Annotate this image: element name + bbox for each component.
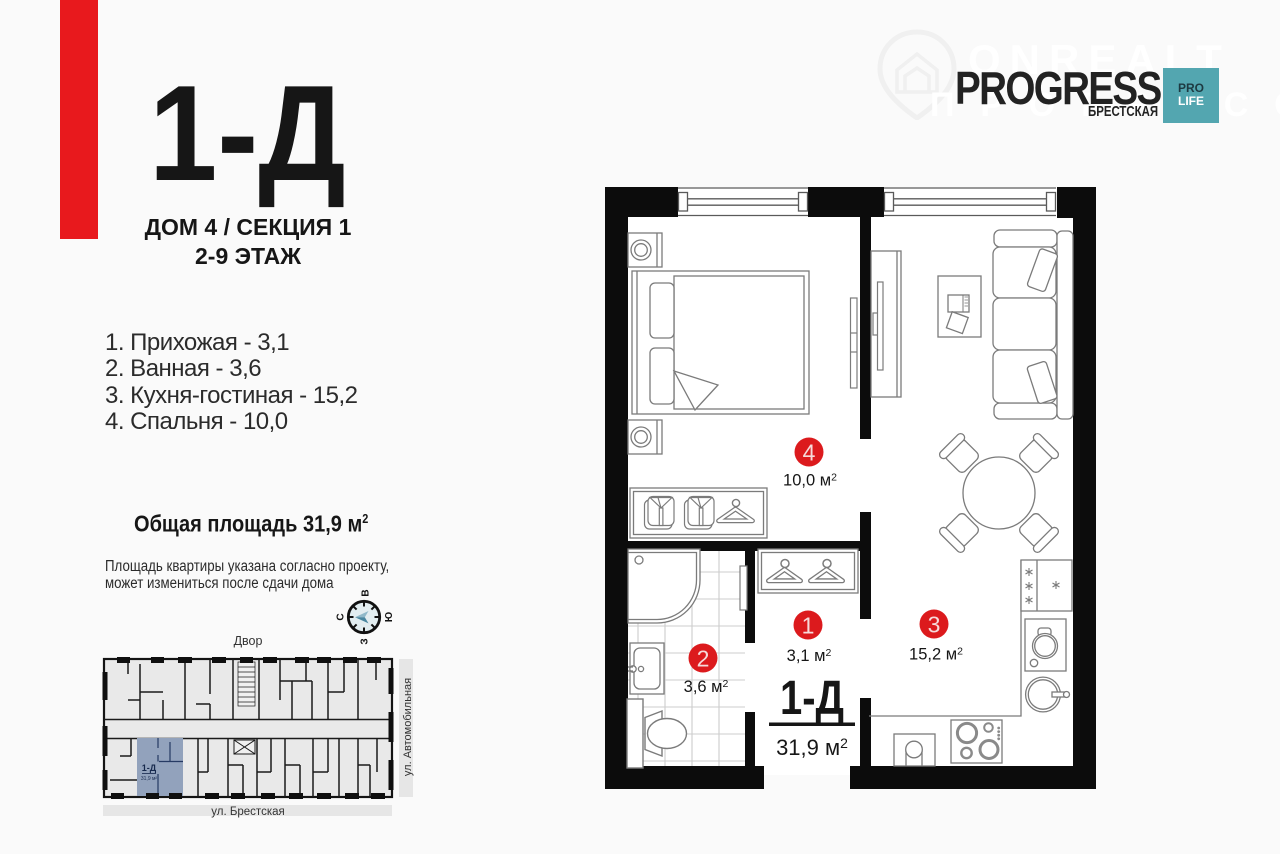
svg-text:С: С <box>336 613 347 620</box>
svg-text:ул. Брестская: ул. Брестская <box>211 806 284 818</box>
svg-text:15,2 м2: 15,2 м2 <box>909 646 963 664</box>
svg-text:1-Д: 1-Д <box>780 672 844 725</box>
svg-text:З: З <box>360 638 371 644</box>
svg-text:3,1 м2: 3,1 м2 <box>787 647 832 665</box>
svg-text:1: 1 <box>802 612 815 638</box>
svg-text:10,0 м2: 10,0 м2 <box>783 472 837 490</box>
svg-text:1-Д: 1-Д <box>142 763 157 773</box>
svg-text:Двор: Двор <box>234 634 263 648</box>
svg-text:31,9 м2: 31,9 м2 <box>776 735 848 760</box>
svg-text:3,6 м2: 3,6 м2 <box>684 678 729 696</box>
svg-text:3: 3 <box>928 611 941 637</box>
svg-text:2: 2 <box>697 645 710 671</box>
svg-text:В: В <box>361 589 372 596</box>
svg-text:31,9 м²: 31,9 м² <box>141 776 158 782</box>
svg-text:ул. Автомобильная: ул. Автомобильная <box>402 678 414 776</box>
svg-text:4: 4 <box>803 439 816 465</box>
svg-text:Ю: Ю <box>384 612 395 622</box>
